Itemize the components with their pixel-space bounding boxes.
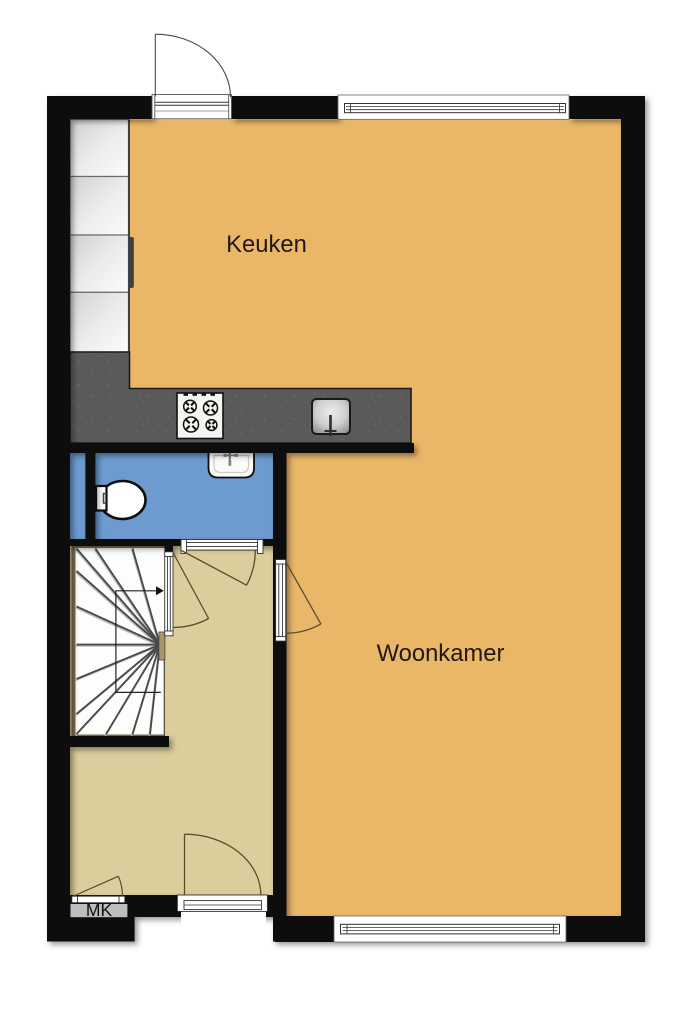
svg-text:Keuken: Keuken — [226, 231, 307, 258]
svg-text:Woonkamer: Woonkamer — [377, 640, 505, 667]
svg-text:MK: MK — [86, 900, 113, 920]
